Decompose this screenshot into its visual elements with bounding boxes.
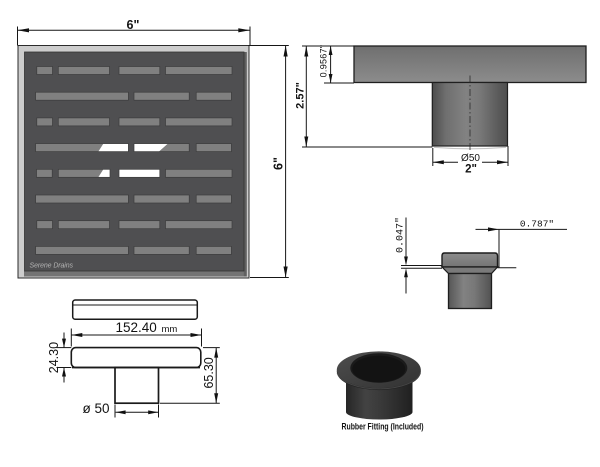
svg-text:0.047": 0.047" [395, 217, 407, 253]
svg-text:Serene Drains: Serene Drains [30, 263, 74, 270]
svg-text:24.30: 24.30 [47, 342, 61, 373]
svg-text:6": 6" [127, 18, 140, 32]
svg-text:0.9567": 0.9567" [319, 45, 329, 78]
svg-text:Rubber Fitting (Included): Rubber Fitting (Included) [342, 422, 424, 433]
svg-text:6": 6" [272, 157, 286, 170]
svg-text:2.57": 2.57" [295, 82, 307, 109]
svg-text:mm: mm [162, 324, 178, 335]
svg-text:65.30: 65.30 [202, 357, 216, 388]
svg-text:0.787": 0.787" [520, 219, 554, 230]
svg-text:2": 2" [465, 164, 477, 176]
svg-text:Ø50: Ø50 [461, 153, 480, 164]
svg-text:152.40: 152.40 [116, 320, 157, 335]
svg-text:ø 50: ø 50 [83, 401, 110, 416]
